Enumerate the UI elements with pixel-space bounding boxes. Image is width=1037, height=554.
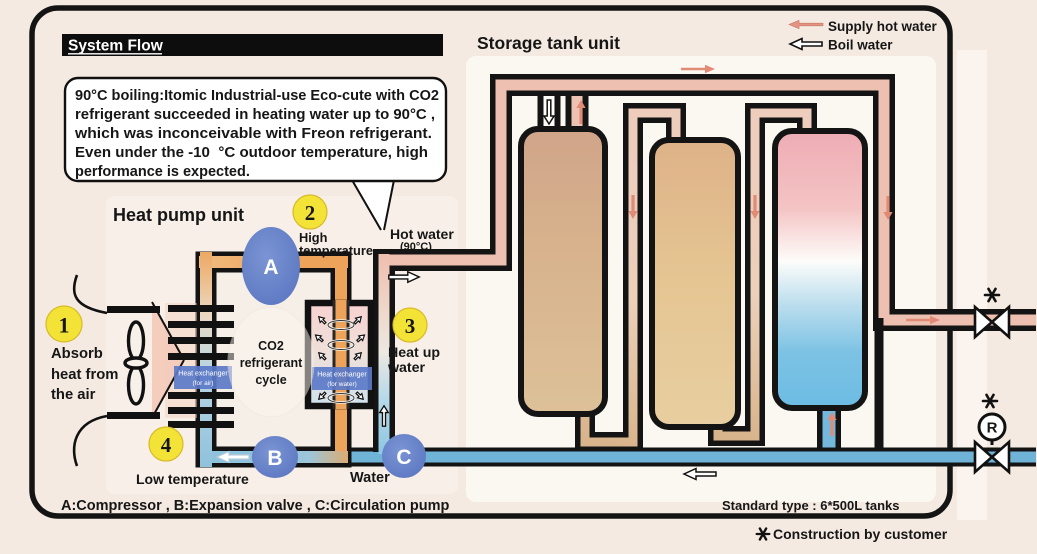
svg-text:Supply hot water: Supply hot water — [828, 19, 938, 34]
svg-text:Heat up: Heat up — [388, 345, 440, 361]
svg-text:cycle: cycle — [255, 373, 286, 387]
svg-text:performance is expected.: performance is expected. — [75, 164, 250, 180]
svg-text:temperature: temperature — [299, 243, 373, 258]
svg-text:2: 2 — [305, 201, 316, 225]
svg-text:Absorb: Absorb — [51, 346, 103, 362]
svg-text:refrigerant succeeded in heati: refrigerant succeeded in heating water u… — [75, 107, 435, 123]
svg-text:System Flow: System Flow — [68, 38, 164, 55]
svg-text:Storage tank unit: Storage tank unit — [477, 33, 620, 53]
svg-text:C: C — [396, 446, 411, 469]
svg-text:B: B — [267, 447, 282, 470]
svg-text:the air: the air — [51, 387, 96, 403]
svg-text:which was inconceivable with F: which was inconceivable with Freon refri… — [74, 126, 432, 142]
svg-text:1: 1 — [59, 313, 70, 338]
svg-text:Heat exchanger: Heat exchanger — [317, 372, 367, 379]
svg-text:(90°C): (90°C) — [400, 241, 432, 253]
svg-text:3: 3 — [405, 314, 416, 338]
svg-text:(for water): (for water) — [327, 381, 357, 388]
svg-text:Hot water: Hot water — [390, 226, 454, 242]
svg-text:Standard type : 6*500L tanks: Standard type : 6*500L tanks — [722, 498, 900, 513]
svg-text:(for air): (for air) — [193, 380, 214, 387]
svg-text:90°C boiling:Itomic Industrial: 90°C boiling:Itomic Industrial-use Eco-c… — [75, 88, 439, 104]
svg-text:A:Compressor , B:Expansion val: A:Compressor , B:Expansion valve , C:Cir… — [61, 498, 449, 514]
svg-text:Boil water: Boil water — [828, 38, 893, 53]
svg-text:A: A — [263, 256, 278, 279]
svg-text:Heat pump unit: Heat pump unit — [113, 205, 244, 225]
svg-text:4: 4 — [161, 433, 172, 457]
svg-text:heat from: heat from — [51, 367, 118, 383]
svg-text:refrigerant: refrigerant — [240, 356, 303, 370]
svg-text:R: R — [987, 420, 998, 437]
svg-text:Low temperature: Low temperature — [136, 471, 249, 487]
svg-text:CO2: CO2 — [258, 339, 284, 353]
svg-text:Construction by customer: Construction by customer — [773, 526, 948, 542]
svg-text:water: water — [387, 360, 426, 376]
svg-text:Water: Water — [350, 470, 390, 486]
svg-text:Even under the -10 °C outdoor: Even under the -10 °C outdoor temperatur… — [75, 145, 428, 161]
svg-text:Heat exchanger: Heat exchanger — [178, 371, 228, 378]
